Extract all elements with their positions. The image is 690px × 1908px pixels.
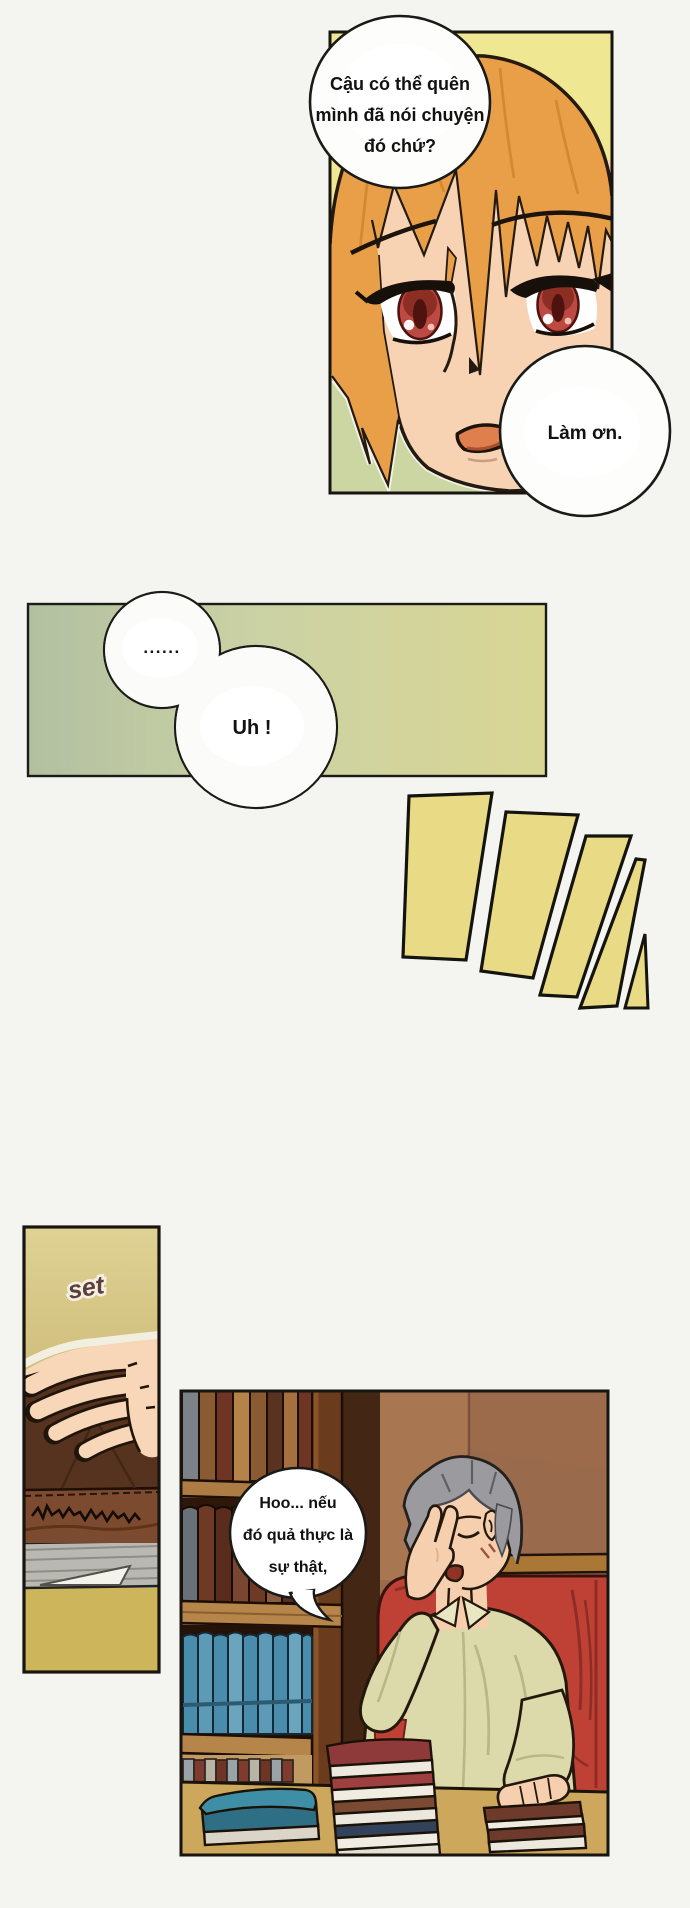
svg-text:Uh !: Uh ! [233, 717, 272, 739]
svg-text:đó chứ?: đó chứ? [364, 136, 436, 156]
svg-text:Cậu có thể quên: Cậu có thể quên [330, 74, 470, 94]
svg-text:Làm ơn.: Làm ơn. [548, 423, 623, 444]
svg-text:......: ...... [143, 638, 180, 657]
svg-text:Hoo... nếu: Hoo... nếu [259, 1495, 336, 1512]
svg-text:đó quả thực là: đó quả thực là [243, 1527, 353, 1544]
svg-text:mình đã nói chuyện: mình đã nói chuyện [315, 105, 484, 125]
svg-text:sự thật,: sự thật, [269, 1559, 328, 1576]
